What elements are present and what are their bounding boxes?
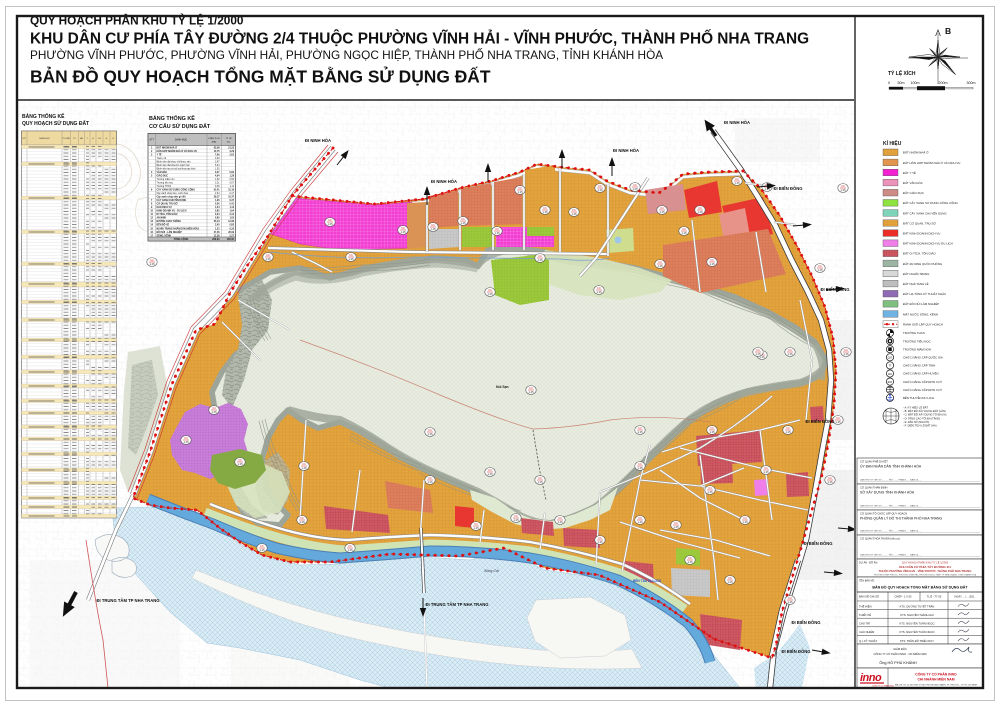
svg-text:ĐỒI NÚI - LÂM NGHIỆP: ĐỒI NÚI - LÂM NGHIỆP — [157, 231, 183, 234]
svg-text:BẢN ĐỒ QUY HOẠCH TỔNG MẶT BẰNG: BẢN ĐỒ QUY HOẠCH TỔNG MẶT BẰNG SỬ DỤNG Đ… — [30, 67, 491, 87]
svg-text:CC: CC — [710, 258, 714, 262]
svg-text:DIỆN TÍCH: DIỆN TÍCH — [209, 137, 220, 140]
svg-text:300m: 300m — [967, 81, 976, 85]
svg-text:CHỨC NĂNG CẤP QUỐC GIA: CHỨC NĂNG CẤP QUỐC GIA — [903, 355, 943, 360]
svg-text:ỦY BAN NHÂN DÂN TỈNH KHÁNH HÒA: ỦY BAN NHÂN DÂN TỈNH KHÁNH HÒA — [860, 464, 922, 469]
svg-text:ĐI BIỂN ĐÔNG: ĐI BIỂN ĐÔNG — [805, 419, 834, 424]
svg-text:CC: CC — [735, 177, 739, 181]
svg-text:ĐI BIỂN ĐÔNG: ĐI BIỂN ĐÔNG — [781, 649, 810, 654]
svg-text:CC: CC — [302, 462, 306, 466]
svg-text:HU: HU — [888, 372, 892, 376]
svg-text:KINH DOANH VỤ - DU LỊCH: KINH DOANH VỤ - DU LỊCH — [157, 210, 187, 213]
svg-text:ĐẤT DI TÍCH, TÔN GIÁO: ĐẤT DI TÍCH, TÔN GIÁO — [903, 251, 936, 256]
svg-text:1.25: 1.25 — [637, 520, 643, 524]
svg-text:STT: STT — [150, 140, 155, 142]
svg-text:CHỨC NĂNG CẤP ĐƠN VỊ Ở: CHỨC NĂNG CẤP ĐƠN VỊ Ở — [903, 387, 942, 392]
svg-text:KÝ HIỆU: KÝ HIỆU — [62, 137, 71, 140]
svg-text:1.25: 1.25 — [427, 480, 433, 484]
svg-text:CC: CC — [431, 223, 435, 227]
svg-text:50m: 50m — [898, 81, 905, 85]
svg-text:1.25: 1.25 — [348, 257, 354, 261]
svg-text:1.25: 1.25 — [460, 221, 466, 225]
svg-text:0,37: 0,37 — [230, 200, 235, 202]
svg-text:1.25: 1.25 — [637, 466, 643, 470]
svg-text:1,34: 1,34 — [215, 206, 220, 209]
svg-text:ĐẤT CÂY XANH CHUYÊN DỤNG: ĐẤT CÂY XANH CHUYÊN DỤNG — [903, 210, 947, 215]
svg-text:0,85: 0,85 — [215, 218, 220, 220]
svg-text:1.25: 1.25 — [709, 262, 715, 266]
svg-text:BẢN ĐỒ QUY HOẠCH TỔNG MẶT BẰNG: BẢN ĐỒ QUY HOẠCH TỔNG MẶT BẰNG SỬ DỤNG Đ… — [872, 585, 968, 590]
svg-text:ĐƠ: ĐƠ — [888, 380, 893, 384]
svg-text:5,85: 5,85 — [215, 211, 220, 213]
svg-text:0,67: 0,67 — [230, 183, 235, 185]
svg-text:MẶT NƯỚC SÔNG, KÊNH: MẶT NƯỚC SÔNG, KÊNH — [903, 311, 938, 316]
svg-text:Bệnh viện tạo và nội soi khoa: Bệnh viện tạo và nội soi khoa tạo hình — [157, 167, 197, 170]
svg-text:(%): (%) — [227, 141, 231, 143]
svg-text:1.25: 1.25 — [571, 212, 577, 216]
svg-text:Trường mầm non: Trường mầm non — [157, 178, 176, 181]
svg-text:4,94: 4,94 — [215, 175, 220, 178]
svg-text:1.25: 1.25 — [827, 480, 833, 484]
svg-text:CC: CC — [495, 227, 499, 231]
svg-text:ĐẤT NHÓM NHÀ Ở: ĐẤT NHÓM NHÀ Ở — [157, 146, 178, 149]
svg-text:ĐI BIỂN ĐÔNG: ĐI BIỂN ĐÔNG — [773, 186, 802, 191]
svg-text:CC: CC — [818, 264, 822, 268]
svg-text:1,52: 1,52 — [215, 179, 220, 181]
svg-text:0,34: 0,34 — [215, 213, 220, 216]
svg-text:0,56: 0,56 — [215, 204, 220, 206]
svg-text:1,13: 1,13 — [230, 207, 235, 209]
svg-text:VĂN THƯ KÝ GHI SỐ ..........: VĂN THƯ KÝ GHI SỐ .......... HỒI .......… — [860, 530, 921, 533]
svg-text:2,45: 2,45 — [215, 224, 220, 227]
svg-text:1.25: 1.25 — [473, 526, 479, 530]
svg-text:CC: CC — [710, 426, 714, 430]
svg-text:CC: CC — [728, 576, 732, 580]
svg-text:0: 0 — [888, 81, 890, 85]
svg-text:CC: CC — [682, 227, 686, 231]
svg-text:1,35: 1,35 — [215, 168, 220, 170]
svg-text:3,29: 3,29 — [230, 151, 235, 153]
svg-text:inno: inno — [860, 672, 882, 684]
svg-text:KÍ HIỆU: KÍ HIỆU — [883, 139, 902, 147]
svg-text:ĐẤT GIÁO DỤC: ĐẤT GIÁO DỤC — [903, 191, 924, 195]
svg-text:CC: CC — [266, 253, 270, 257]
svg-text:CC: CC — [300, 516, 304, 520]
svg-text:ĐỊA CHỈ: SỐ 20, ĐƯỜNG SỐ 4A, P: ĐỊA CHỈ: SỐ 20, ĐƯỜNG SỐ 4A, PHƯỜNG AN K… — [895, 684, 978, 687]
svg-text:CC: CC — [708, 486, 712, 490]
svg-text:CC: CC — [598, 184, 602, 188]
svg-text:B: B — [945, 26, 951, 36]
svg-text:0,92: 0,92 — [230, 172, 235, 174]
svg-text:1.25: 1.25 — [659, 210, 665, 214]
svg-text:0,29: 0,29 — [215, 158, 220, 160]
svg-text:2,14: 2,14 — [230, 213, 235, 216]
svg-text:CC: CC — [788, 596, 792, 600]
svg-text:CC: CC — [597, 286, 601, 290]
svg-text:TRƯỜNG MẦM NON: TRƯỜNG MẦM NON — [903, 346, 931, 351]
svg-text:CC: CC — [598, 536, 602, 540]
svg-text:TỔNG CỘNG: TỔNG CỘNG — [174, 238, 189, 241]
svg-text:1.25: 1.25 — [637, 430, 643, 434]
svg-text:1.25: 1.25 — [681, 231, 687, 235]
svg-text:1,22: 1,22 — [215, 228, 220, 230]
svg-text:7,96: 7,96 — [215, 154, 220, 156]
svg-text:10,75: 10,75 — [214, 151, 220, 153]
svg-text:DI TÍCH, TÔN GIÁO: DI TÍCH, TÔN GIÁO — [157, 213, 178, 216]
svg-text:1.25: 1.25 — [487, 472, 493, 476]
svg-text:CC: CC — [633, 183, 637, 187]
svg-text:5,04: 5,04 — [215, 165, 220, 167]
svg-text:ĐẤT VĂN HÓA: ĐẤT VĂN HÓA — [903, 180, 923, 185]
svg-text:0,50: 0,50 — [230, 179, 235, 181]
svg-text:62,41: 62,41 — [214, 189, 220, 192]
svg-text:ĐẤT HẠ TẦNG KỸ THUẬT KHÁC: ĐẤT HẠ TẦNG KỸ THUẬT KHÁC — [903, 291, 946, 296]
svg-text:3,36: 3,36 — [215, 186, 220, 188]
svg-text:CHỨC NĂNG CẤP HUYỆN: CHỨC NĂNG CẤP HUYỆN — [903, 371, 939, 376]
svg-text:ĐI TRUNG TÂM TP NHA TRANG: ĐI TRUNG TÂM TP NHA TRANG — [96, 598, 159, 603]
svg-text:CHI NHÁNH MIỀN NAM: CHI NHÁNH MIỀN NAM — [917, 677, 954, 682]
svg-text:63,99: 63,99 — [214, 147, 220, 149]
svg-text:1.25: 1.25 — [427, 432, 433, 436]
svg-text:1,28: 1,28 — [230, 176, 235, 178]
svg-text:CC: CC — [638, 426, 642, 430]
svg-text:CÂY XANH CHUYÊN DỤNG: CÂY XANH CHUYÊN DỤNG — [157, 199, 187, 202]
svg-text:TÊN BẢN VẼ:: TÊN BẢN VẼ: — [859, 580, 875, 583]
svg-text:1.25: 1.25 — [537, 258, 543, 262]
svg-text:ĐẤT Y TẾ: ĐẤT Y TẾ — [903, 170, 916, 175]
svg-text:21,53: 21,53 — [228, 147, 234, 149]
svg-text:QUY HOẠCH SỬ DỤNG ĐẤT: QUY HOẠCH SỬ DỤNG ĐẤT — [22, 120, 89, 127]
svg-text:CC: CC — [150, 258, 154, 262]
svg-text:ĐI BIỂN ĐÔNG: ĐI BIỂN ĐÔNG — [791, 620, 820, 625]
svg-text:KHO DỊCH VỤ: KHO DỊCH VỤ — [157, 207, 173, 209]
svg-text:ĐI TRUNG TÂM TP NHA TRANG: ĐI TRUNG TÂM TP NHA TRANG — [425, 602, 488, 607]
svg-text:DỰ ÁN - ĐỒ ÁN:: DỰ ÁN - ĐỒ ÁN: — [859, 562, 878, 565]
svg-text:VĂN THƯ KÝ GHI SỐ ..........: VĂN THƯ KÝ GHI SỐ .......... HỒI .......… — [860, 505, 921, 508]
svg-text:35,24: 35,24 — [214, 220, 220, 223]
svg-text:TRƯỜNG THCS: TRƯỜNG THCS — [903, 330, 925, 335]
svg-text:ĐẤT CÂY XANH SỬ DỤNG CÔNG CỘNG: ĐẤT CÂY XANH SỬ DỤNG CÔNG CỘNG — [903, 200, 958, 205]
svg-text:CC: CC — [764, 466, 768, 470]
svg-text:ĐẤT AN NINH QUỐC PHÒNG: ĐẤT AN NINH QUỐC PHÒNG — [903, 261, 943, 266]
svg-text:1.25: 1.25 — [596, 290, 602, 294]
svg-text:1.25: 1.25 — [687, 560, 693, 564]
svg-text:SỞ XÂY DỰNG TỈNH KHÁNH HÒA: SỞ XÂY DỰNG TỈNH KHÁNH HÒA — [860, 490, 915, 495]
svg-text:0,17: 0,17 — [230, 193, 235, 195]
svg-text:CC: CC — [212, 406, 216, 410]
svg-text:CC: CC — [844, 348, 848, 352]
svg-text:CC: CC — [184, 436, 188, 440]
svg-text:ĐẤT HỖN HỢP NHÓM NHÀ Ở VÀ DỊCH: ĐẤT HỖN HỢP NHÓM NHÀ Ở VÀ DỊCH VỤ — [903, 160, 960, 165]
svg-text:TỈ: TỈ — [889, 363, 892, 368]
svg-text:26,09: 26,09 — [228, 232, 234, 234]
svg-text:Bệnh viện đa khoa tim mạch học: Bệnh viện đa khoa tim mạch học — [157, 164, 191, 167]
svg-text:Ông HỒ PHÚ KHÁNH: Ông HỒ PHÚ KHÁNH — [879, 660, 917, 665]
svg-text:CHỨC NĂNG CẤP TỈNH: CHỨC NĂNG CẤP TỈNH — [903, 363, 935, 368]
svg-text:1.25: 1.25 — [673, 525, 679, 529]
svg-text:Trường THCS: Trường THCS — [157, 185, 172, 188]
svg-text:1.25: 1.25 — [265, 257, 271, 261]
svg-text:1.25: 1.25 — [487, 292, 493, 296]
svg-text:RANH GIỚI LẬP QUY HOẠCH: RANH GIỚI LẬP QUY HOẠCH — [903, 321, 943, 326]
svg-text:VĂN THƯ KÝ GHI SỐ ..........: VĂN THƯ KÝ GHI SỐ .......... HỒI .......… — [860, 479, 921, 482]
svg-text:CC: CC — [401, 226, 405, 230]
svg-text:1.25: 1.25 — [697, 210, 703, 214]
svg-text:GIÁO DỤC: GIÁO DỤC — [157, 175, 169, 178]
svg-text:100m: 100m — [911, 81, 920, 85]
svg-text:ĐẤT ĐỒI NÚI LÂM NGHIỆP: ĐẤT ĐỒI NÚI LÂM NGHIỆP — [903, 301, 939, 306]
svg-text:CC: CC — [828, 476, 832, 480]
svg-text:VĂN HÓA: VĂN HÓA — [157, 171, 168, 174]
svg-text:1.25: 1.25 — [149, 262, 155, 266]
svg-text:CC: CC — [674, 521, 678, 525]
svg-text:3,97: 3,97 — [215, 161, 220, 163]
svg-text:CC: CC — [756, 348, 760, 352]
svg-text:ĐI BIỂN ĐÔNG: ĐI BIỂN ĐÔNG — [803, 541, 832, 546]
svg-text:ĐI NINH HÒA: ĐI NINH HÒA — [305, 138, 331, 143]
svg-text:CC: CC — [638, 516, 642, 520]
svg-text:CHỨC NĂNG CẤP ĐƠN VỊ Ở: CHỨC NĂNG CẤP ĐƠN VỊ Ở — [903, 379, 942, 384]
svg-text:1.25: 1.25 — [632, 187, 638, 191]
svg-text:1.25: 1.25 — [347, 548, 353, 552]
svg-text:1,05: 1,05 — [230, 218, 235, 220]
svg-text:CC: CC — [538, 476, 542, 480]
svg-text:CC: CC — [841, 184, 845, 188]
svg-text:CC: CC — [698, 206, 702, 210]
svg-text:CC: CC — [488, 288, 492, 292]
svg-text:CC: CC — [474, 522, 478, 526]
svg-text:NGHĨA TRANG NHÂN DÂN (HIỆN HỮU: NGHĨA TRANG NHÂN DÂN (HIỆN HỮU) — [157, 227, 200, 230]
svg-text:Cây xanh công viên, vườn hoa: Cây xanh công viên, vườn hoa — [157, 193, 189, 195]
svg-text:CƠ CẤU SỬ DỤNG ĐẤT: CƠ CẤU SỬ DỤNG ĐẤT — [149, 123, 211, 130]
svg-text:CC: CC — [658, 260, 662, 264]
svg-text:1.25: 1.25 — [542, 210, 548, 214]
svg-text:CC: CC — [836, 416, 840, 420]
svg-text:CC: CC — [543, 206, 547, 210]
svg-text:10,37: 10,37 — [228, 197, 234, 199]
svg-text:VĂN THƯ KÝ GHI SỐ ..........: VĂN THƯ KÝ GHI SỐ .......... HỒI .......… — [860, 554, 921, 557]
svg-text:CC: CC — [660, 206, 664, 210]
svg-text:0,33: 0,33 — [230, 228, 235, 230]
svg-text:CC: CC — [488, 468, 492, 472]
svg-text:Núi Sạn: Núi Sạn — [496, 385, 509, 389]
svg-text:39,27: 39,27 — [214, 197, 220, 199]
svg-text:1.25: 1.25 — [817, 268, 823, 272]
svg-text:TỶ LỆ XÍCH: TỶ LỆ XÍCH — [888, 69, 916, 77]
svg-text:MĐ: MĐ — [80, 138, 84, 140]
svg-text:12,96: 12,96 — [228, 221, 234, 223]
svg-text:CC: CC — [428, 476, 432, 480]
svg-text:ĐẤT KINH DOANH DỊCH VỤ DU LỊCH: ĐẤT KINH DOANH DỊCH VỤ DU LỊCH — [903, 242, 953, 246]
svg-text:ĐẤT NHÀ TANG LỄ: ĐẤT NHÀ TANG LỄ — [903, 281, 929, 286]
svg-text:Y TẾ: Y TẾ — [157, 153, 163, 156]
svg-text:ĐẤT NHÓM NHÀ Ở: ĐẤT NHÓM NHÀ Ở — [903, 150, 929, 155]
svg-text:1.25: 1.25 — [528, 390, 534, 394]
svg-text:PHƯỜNG VĨNH PHƯỚC, PHƯỜNG VĨNH: PHƯỜNG VĨNH PHƯỚC, PHƯỜNG VĨNH HẢI, PHƯỜ… — [874, 573, 977, 576]
svg-text:1.25: 1.25 — [537, 480, 543, 484]
svg-text:1.25: 1.25 — [835, 420, 841, 424]
svg-text:BẾN THUYỀN DU LỊCH: BẾN THUYỀN DU LỊCH — [903, 395, 934, 400]
svg-text:1.25: 1.25 — [755, 352, 761, 356]
svg-text:AN NINH: AN NINH — [157, 217, 167, 220]
svg-text:ĐI BIỂN ĐÔNG: ĐI BIỂN ĐÔNG — [820, 287, 849, 292]
svg-text:CÂY XANH SỬ DỤNG CÔNG CỘNG: CÂY XANH SỬ DỤNG CÔNG CỘNG — [157, 189, 196, 192]
svg-text:Bệnh viện đa khoa, nhi khoa, s: Bệnh viện đa khoa, nhi khoa, sản — [157, 160, 192, 163]
svg-text:1.25: 1.25 — [727, 580, 733, 584]
svg-text:CC: CC — [788, 348, 792, 352]
svg-text:CC: CC — [572, 208, 576, 212]
svg-text:1.25: 1.25 — [513, 518, 519, 522]
svg-text:CC: CC — [328, 218, 332, 222]
svg-text:1,36: 1,36 — [215, 200, 220, 202]
svg-text:CC: CC — [538, 254, 542, 258]
svg-text:ĐƯỜNG GIAO THÔNG: ĐƯỜNG GIAO THÔNG — [157, 220, 182, 223]
svg-text:1.25: 1.25 — [734, 181, 740, 185]
svg-text:CÔNG TY CỔ PHẦN INNO: CÔNG TY CỔ PHẦN INNO — [915, 672, 957, 677]
svg-text:1.25: 1.25 — [597, 188, 603, 192]
svg-text:PHƯỜNG VĨNH PHƯỚC, PHƯỜNG VĨNH: PHƯỜNG VĨNH PHƯỚC, PHƯỜNG VĨNH HẢI, PHƯỜ… — [30, 48, 663, 62]
svg-text:DANH MỤC: DANH MỤC — [39, 137, 50, 140]
svg-text:3,21: 3,21 — [215, 183, 220, 185]
svg-text:KHU DÂN CƯ PHÍA TÂY ĐƯỜNG 2/4: KHU DÂN CƯ PHÍA TÂY ĐƯỜNG 2/4 THUỘC PHƯỜ… — [30, 30, 809, 48]
svg-text:BẢNG THỐNG KÊ: BẢNG THỐNG KÊ — [22, 112, 65, 120]
svg-text:PHÒNG QUẢN LÝ ĐÔ THỊ THÀNH PHỐ: PHÒNG QUẢN LÝ ĐÔ THỊ THÀNH PHỐ NHA TRANG — [860, 516, 943, 521]
svg-text:Trường tiểu học: Trường tiểu học — [157, 182, 174, 185]
svg-text:ĐẤT KINH DOANH DỊCH VỤ: ĐẤT KINH DOANH DỊCH VỤ — [903, 232, 940, 236]
svg-text:Cây xanh công viên gò đồi: Cây xanh công viên gò đồi — [157, 196, 186, 199]
svg-text:1,11: 1,11 — [230, 186, 235, 188]
svg-text:1.25: 1.25 — [430, 227, 436, 231]
svg-text:27,36: 27,36 — [214, 232, 220, 234]
svg-text:1.25: 1.25 — [557, 520, 563, 524]
svg-text:CC: CC — [348, 544, 352, 548]
svg-text:(HA): (HA) — [212, 140, 217, 143]
svg-text:1.25: 1.25 — [183, 440, 189, 444]
svg-text:Trạm y tế: Trạm y tế — [157, 157, 167, 160]
svg-text:1.25: 1.25 — [709, 430, 715, 434]
svg-text:Sông Cái: Sông Cái — [484, 569, 499, 573]
svg-text:CC: CC — [743, 516, 747, 520]
svg-text:1,64: 1,64 — [230, 210, 235, 213]
svg-text:BẾN TÀU DU LỊCH: BẾN TÀU DU LỊCH — [633, 578, 662, 583]
svg-text:1.25: 1.25 — [237, 462, 243, 466]
svg-text:BẢNG THỐNG KÊ: BẢNG THỐNG KÊ — [149, 114, 195, 122]
svg-text:1.25: 1.25 — [597, 540, 603, 544]
svg-text:CC: CC — [238, 458, 242, 462]
svg-text:100,00: 100,00 — [227, 238, 235, 241]
svg-text:CƠ QUAN, TRỤ SỞ: CƠ QUAN, TRỤ SỞ — [157, 203, 178, 206]
svg-text:BẾN ĐỖ XE: BẾN ĐỖ XE — [157, 224, 170, 227]
svg-text:1.25: 1.25 — [657, 264, 663, 268]
svg-text:1.25: 1.25 — [787, 600, 793, 604]
svg-text:1.25: 1.25 — [259, 548, 265, 552]
svg-text:ĐI NINH HÒA: ĐI NINH HÒA — [724, 120, 750, 125]
svg-text:QG: QG — [888, 356, 893, 360]
svg-text:2,34: 2,34 — [215, 193, 220, 195]
svg-text:CC: CC — [461, 217, 465, 221]
svg-text:CC: CC — [688, 556, 692, 560]
svg-text:1.25: 1.25 — [742, 520, 748, 524]
svg-text:CC: CC — [349, 253, 353, 257]
svg-text:CC: CC — [638, 462, 642, 466]
svg-text:1.25: 1.25 — [840, 188, 846, 192]
svg-text:DANH MỤC: DANH MỤC — [175, 139, 188, 142]
svg-text:1.25: 1.25 — [400, 230, 406, 234]
svg-text:1.25: 1.25 — [707, 490, 713, 494]
svg-text:1.25: 1.25 — [785, 430, 791, 434]
svg-text:NGÀY ..../..../202..: NGÀY ..../..../202.. — [955, 595, 976, 599]
svg-text:0,41: 0,41 — [230, 203, 235, 206]
svg-text:1.25: 1.25 — [494, 231, 500, 235]
svg-text:CC: CC — [518, 186, 522, 190]
svg-text:CC: CC — [428, 428, 432, 432]
svg-text:1.25: 1.25 — [517, 190, 523, 194]
svg-text:1.25: 1.25 — [327, 222, 333, 226]
svg-text:HỖN HỢP NHÓM NHÀ Ở VÀ DỊCH VỤ: HỖN HỢP NHÓM NHÀ Ở VÀ DỊCH VỤ — [157, 150, 198, 153]
svg-text:ĐẤT CƠ QUAN, TRỤ SỞ: ĐẤT CƠ QUAN, TRỤ SỞ — [903, 220, 936, 225]
svg-text:3,47: 3,47 — [215, 171, 220, 174]
svg-text:TỶ LỆ: TỶ LỆ — [225, 137, 232, 140]
svg-text:CC: CC — [529, 386, 533, 390]
svg-text:1.25: 1.25 — [299, 520, 305, 524]
svg-text:0,85: 0,85 — [230, 225, 235, 227]
svg-text:1.25: 1.25 — [301, 466, 307, 470]
svg-text:THUỘC PHƯỜNG VĨNH HẢI - VĨNH P: THUỘC PHƯỜNG VĨNH HẢI - VĨNH PHƯỚC, THÀN… — [879, 568, 972, 573]
svg-text:1.25: 1.25 — [843, 352, 849, 356]
svg-text:ĐI NINH HÒA: ĐI NINH HÒA — [613, 148, 639, 153]
svg-text:1.25: 1.25 — [763, 470, 769, 474]
svg-text:CC: CC — [558, 516, 562, 520]
svg-text:ĐẤT NGHĨA TRANG: ĐẤT NGHĨA TRANG — [903, 271, 930, 276]
svg-text:ĐI NINH HÒA: ĐI NINH HÒA — [431, 179, 457, 184]
svg-text:CC: CC — [514, 514, 518, 518]
svg-text:2,62: 2,62 — [230, 154, 235, 156]
svg-text:CC: CC — [260, 544, 264, 548]
svg-text:1.25: 1.25 — [211, 410, 217, 414]
svg-text:1.25: 1.25 — [787, 352, 793, 356]
svg-text:TRƯỜNG TIỂU HỌC: TRƯỜNG TIỂU HỌC — [903, 338, 931, 343]
svg-text:200m: 200m — [939, 81, 948, 85]
svg-text:10,19: 10,19 — [228, 190, 234, 192]
svg-text:296,94: 296,94 — [212, 238, 220, 241]
svg-text:CC: CC — [786, 426, 790, 430]
